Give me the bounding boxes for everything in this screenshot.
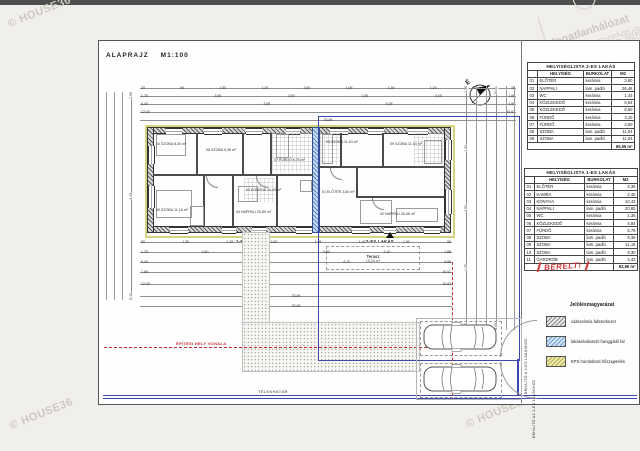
window — [246, 128, 262, 135]
column-header — [528, 70, 538, 77]
table-title: HELYISÉGLISTA 2-ES LAKÁS — [528, 63, 635, 71]
window — [222, 227, 236, 234]
dimension-line — [114, 92, 115, 300]
table-row: 01ELŐTÉRkerámia3,60 — [528, 77, 635, 84]
room-label: 08 SZOBA 9,36 m² — [206, 148, 236, 152]
table-row: 09SZOBAlam. padló11,16 — [525, 241, 638, 248]
table-row: 01ELŐTÉRkerámia4,36 — [525, 183, 638, 190]
table-row: 05KÖZLEKEDŐkerámia6,60 — [528, 106, 635, 113]
total-spacer — [528, 143, 612, 150]
column-header: HELYISÉG — [538, 70, 584, 77]
legend-swatch — [546, 336, 566, 347]
washing-machine — [300, 180, 312, 192]
table-row: 08SZOBAlam. padló9,36 — [525, 234, 638, 241]
table-row: 05WCkerámia1,35 — [525, 212, 638, 219]
legend-swatch — [546, 356, 566, 367]
column-header: M2 — [612, 70, 635, 77]
building-line — [104, 347, 452, 348]
table-row: 06FÜRDŐkerámia3,10 — [528, 114, 635, 121]
table-row: 09SZOBAlam. padló11,04 — [528, 135, 635, 142]
plot-boundary-label: TELEKHATÁR — [258, 389, 288, 394]
table-row: 07FÜRDŐkerámia5,75 — [525, 227, 638, 234]
column-header: M2 — [614, 176, 638, 183]
total-area: 65,55 m² — [612, 143, 635, 150]
driveway-label-apartment2: BEHAJTÓ A 2-ES LAKÁSHOZ — [524, 316, 528, 394]
window — [170, 227, 188, 234]
partition-wall — [196, 133, 198, 176]
legend-title: Jelölésmagyarázat — [546, 302, 638, 308]
dimension-line: 1,753,652,601,053,451,88 — [140, 96, 516, 97]
partition-wall — [232, 176, 234, 227]
watermark-house36: © HOUSE36 — [8, 396, 75, 432]
partition-wall — [242, 133, 244, 176]
dimension-line: 30901,501,202,601,051,501,209030 — [140, 88, 516, 89]
room-label: 10 SZOBA 8,30 m² — [156, 142, 186, 146]
column-header: BURKOLAT — [584, 70, 612, 77]
room-label: 03 KONYHA 10,43 m² — [246, 188, 281, 192]
driveway-label-apartment1: BEHAJTÓ AZ 1-ES LAKÁSHOZ — [532, 360, 536, 438]
plot-boundary-line — [103, 398, 637, 399]
title-text: ALAPRAJZ — [106, 52, 149, 59]
partition-wall — [276, 176, 278, 227]
total-area: 82,96 m² — [614, 263, 638, 270]
table-row: 02KAMRAkerámia2,40 — [525, 191, 638, 198]
car-top-view — [422, 364, 498, 394]
room-label: 07 FÜRDŐ 5,75 m² — [274, 158, 305, 162]
window — [148, 146, 155, 164]
wall-segment — [148, 128, 153, 232]
scale-text: M1:100 — [161, 52, 189, 59]
table-row: 06KÖZLEKEDŐkerámia4,84 — [525, 220, 638, 227]
room-label: 09 SZOBA 11,16 m² — [156, 208, 188, 212]
column-header: HELYISÉG — [535, 176, 585, 183]
walkway-paving — [242, 232, 270, 324]
building-line-label: ÉPÍTÉSI HELY VONALA — [176, 341, 226, 346]
legend-swatch — [546, 316, 566, 327]
table-row: 07FÜRDŐkerámia4,50 — [528, 121, 635, 128]
room-table-apartment2: HELYISÉGLISTA 2-ES LAKÁS HELYISÉG BURKOL… — [527, 62, 635, 150]
table-row: 03KONYHAkerámia10,43 — [525, 198, 638, 205]
legend: Jelölésmagyarázat vázkerámia falszerkeze… — [546, 302, 638, 376]
column-header — [525, 176, 535, 183]
room-table-apartment1: HELYISÉGLISTA 1-ES LAKÁS HELYISÉG BURKOL… — [524, 168, 638, 271]
window — [148, 186, 155, 208]
car-top-view — [422, 322, 498, 352]
legend-item: lakáselválasztó hanggátló fal — [546, 336, 638, 347]
plot-boundary-line — [103, 395, 637, 396]
dimension-line: 12,4310,63 — [140, 112, 516, 113]
bathtub — [276, 134, 289, 158]
bed — [156, 190, 192, 218]
floor-plan-sheet: © HOUSE36 © HOUSE36 © HOUSE36 © HOUSE36 … — [0, 0, 640, 451]
wardrobe — [190, 206, 204, 226]
table-row: 02NAPPALIlam. padló26,46 — [528, 85, 635, 92]
table-row: 08SZOBAlam. padló11,04 — [528, 128, 635, 135]
drawing-title: ALAPRAJZM1:100 — [106, 52, 189, 59]
table-row: 03WCkerámia1,43 — [528, 92, 635, 99]
legend-item: EPS homlokzati hőszigetelés — [546, 356, 638, 367]
room-label: 04 NAPPALI 20,80 m² — [236, 210, 271, 214]
table-row: 04KÖZLEKEDŐkerámia6,64 — [528, 99, 635, 106]
dimension-line — [106, 92, 107, 300]
dimension-line: 1,504,433,10 — [131, 92, 132, 300]
window — [296, 227, 312, 234]
table-row: 04NAPPALIlam. padló20,80 — [525, 205, 638, 212]
table-row: 10SZOBAlam. padló8,30 — [525, 249, 638, 256]
table-title: HELYISÉGLISTA 1-ES LAKÁS — [525, 169, 638, 177]
window — [204, 128, 222, 135]
dimension-line — [122, 92, 123, 300]
dimension-line: 5,404,656,354,50 — [140, 104, 516, 105]
legend-item: vázkerámia falszerkezet — [546, 316, 638, 327]
column-header: BURKOLAT — [585, 176, 614, 183]
